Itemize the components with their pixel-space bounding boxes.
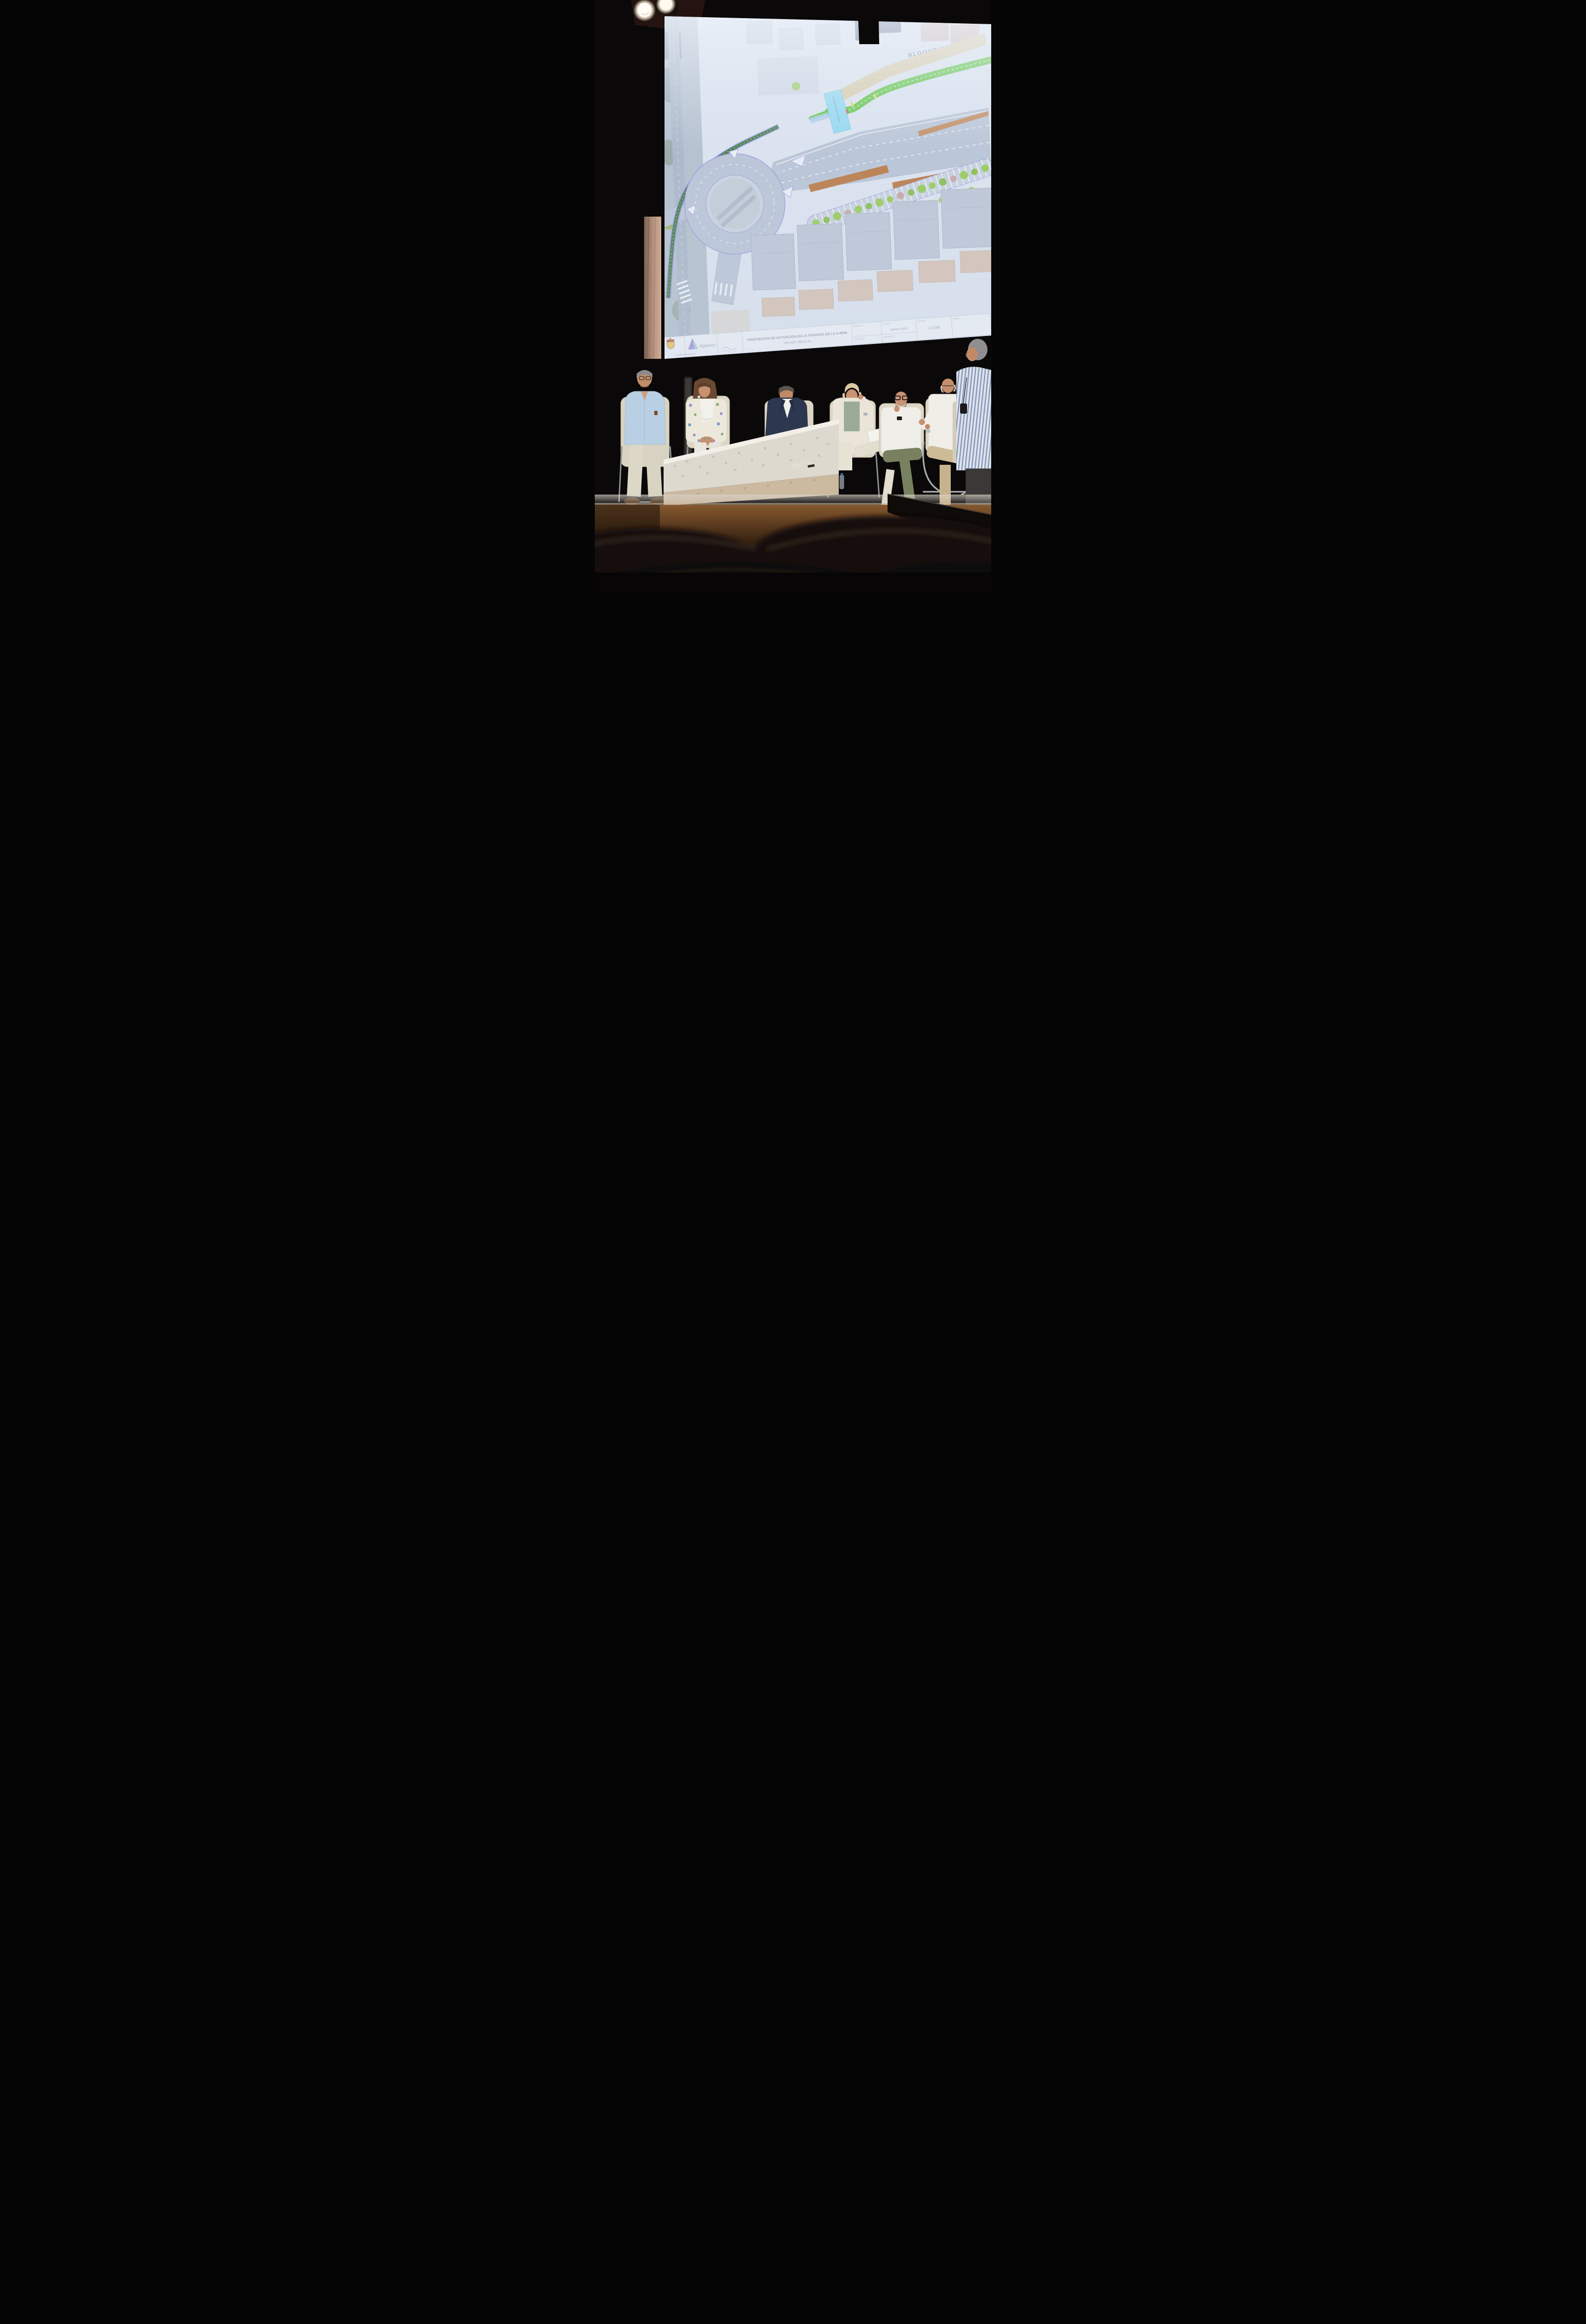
watch-icon — [863, 413, 868, 416]
scene-canvas: BLOQUE 3 — [595, 0, 991, 595]
nail — [706, 438, 707, 439]
trouser-leg — [645, 442, 662, 496]
hand — [925, 424, 930, 429]
white-shirt — [881, 407, 921, 455]
black-watch-icon — [897, 416, 902, 420]
screen-sheen — [660, 13, 991, 362]
face-profile — [967, 347, 978, 361]
foreground-dark — [595, 573, 991, 595]
earring-icon — [698, 396, 700, 398]
hand-on-chin — [894, 406, 900, 412]
sage-top — [844, 402, 860, 431]
striped-shirt — [956, 367, 991, 470]
cream-trouser — [837, 442, 852, 470]
silver-watch-icon — [926, 429, 930, 433]
hand — [919, 419, 925, 425]
hand-on-chin — [858, 395, 863, 400]
nail — [709, 438, 710, 439]
receiver-pack — [960, 403, 967, 414]
projection-screen: BLOQUE 3 — [651, 3, 991, 369]
water-bottle — [840, 473, 844, 489]
nail — [704, 438, 705, 439]
trouser-leg — [627, 442, 644, 496]
stage-curtain — [644, 217, 661, 359]
auditorium-photo: BLOQUE 3 — [595, 0, 991, 595]
pocket-square — [654, 411, 658, 415]
bald-head — [895, 392, 908, 406]
